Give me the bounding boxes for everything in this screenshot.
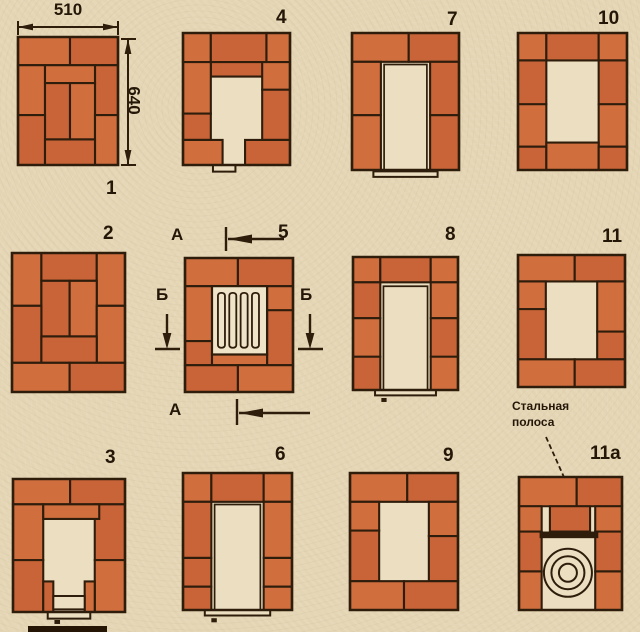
brick bbox=[185, 365, 238, 392]
brick bbox=[546, 33, 598, 60]
brick bbox=[185, 341, 212, 365]
brick bbox=[43, 581, 53, 612]
brick bbox=[599, 60, 627, 104]
course-drawing bbox=[13, 479, 125, 612]
steel-strip-label: Стальная полоса bbox=[512, 399, 578, 430]
door-plate bbox=[53, 596, 84, 609]
course-10 bbox=[518, 33, 627, 170]
brick bbox=[409, 33, 459, 62]
brick bbox=[352, 62, 381, 115]
course-6 bbox=[183, 473, 292, 610]
course-number-1: 1 bbox=[106, 179, 117, 198]
brick bbox=[429, 502, 458, 536]
dimension-height-label: 640 bbox=[126, 79, 143, 123]
brick bbox=[18, 115, 45, 165]
brick bbox=[45, 83, 70, 139]
brick bbox=[211, 33, 267, 62]
course-8 bbox=[353, 257, 458, 390]
brick bbox=[267, 286, 293, 310]
brick bbox=[85, 581, 95, 612]
brick bbox=[212, 354, 267, 365]
brick bbox=[185, 286, 212, 341]
brick bbox=[45, 139, 95, 165]
course-4 bbox=[183, 33, 290, 165]
section-marker-b-left: Б bbox=[156, 286, 168, 303]
brick bbox=[575, 255, 625, 281]
brick bbox=[518, 60, 546, 104]
brick bbox=[264, 587, 292, 610]
course-5 bbox=[185, 258, 293, 392]
course-3 bbox=[13, 479, 125, 612]
door-plate bbox=[373, 171, 437, 176]
brick bbox=[211, 62, 267, 77]
course-number-6: 6 bbox=[275, 445, 286, 464]
steel-strip bbox=[54, 620, 60, 624]
brick bbox=[431, 318, 458, 357]
brick bbox=[518, 104, 546, 146]
course-number-9: 9 bbox=[443, 446, 454, 465]
brick bbox=[429, 536, 458, 581]
brick bbox=[595, 506, 622, 531]
brick bbox=[70, 363, 125, 392]
course-number-7: 7 bbox=[447, 10, 458, 29]
brick bbox=[13, 560, 43, 612]
brick bbox=[350, 502, 379, 531]
brick bbox=[43, 504, 99, 519]
brick bbox=[380, 257, 430, 282]
brick bbox=[353, 318, 380, 357]
brick bbox=[183, 62, 211, 113]
brick bbox=[350, 581, 404, 610]
brick bbox=[350, 473, 407, 502]
steel-strip bbox=[381, 398, 386, 402]
brick bbox=[70, 37, 118, 65]
brick bbox=[431, 357, 458, 390]
brick bbox=[431, 282, 458, 318]
section-a-top-arrowhead bbox=[228, 235, 252, 244]
section-b-left-arrowhead bbox=[163, 333, 172, 349]
brick bbox=[97, 253, 125, 306]
brick bbox=[245, 140, 290, 165]
brick bbox=[70, 83, 95, 139]
brick bbox=[577, 477, 622, 506]
brick bbox=[95, 65, 118, 115]
brick bbox=[18, 65, 45, 115]
brick bbox=[518, 359, 575, 387]
brick bbox=[518, 33, 546, 60]
brick bbox=[12, 306, 41, 363]
brick bbox=[519, 571, 542, 610]
course-drawing bbox=[18, 37, 118, 165]
course-11 bbox=[518, 255, 625, 387]
brick bbox=[353, 282, 380, 318]
brick bbox=[430, 115, 459, 170]
brick bbox=[264, 473, 292, 502]
brick bbox=[267, 310, 293, 365]
brick bbox=[183, 33, 211, 62]
brick bbox=[518, 255, 575, 281]
course-drawing bbox=[183, 473, 292, 610]
brick bbox=[12, 253, 41, 306]
course-drawing bbox=[518, 33, 627, 170]
section-b-right-arrowhead bbox=[306, 333, 315, 349]
brick bbox=[183, 558, 211, 587]
brick bbox=[352, 115, 381, 170]
course-number-11a: 11а bbox=[590, 444, 621, 463]
section-a-bottom-arrowhead bbox=[239, 409, 263, 418]
course-number-11: 11 bbox=[602, 227, 622, 246]
steel-strip bbox=[540, 532, 599, 539]
brick bbox=[430, 62, 459, 115]
stove-brick-course-diagram: 510 640 А А Б Б Стальная полоса 12345678… bbox=[0, 0, 640, 632]
course-2 bbox=[12, 253, 125, 392]
course-drawing bbox=[12, 253, 125, 392]
course-number-2: 2 bbox=[103, 224, 114, 243]
brick bbox=[262, 62, 290, 90]
brick bbox=[183, 140, 223, 165]
brick bbox=[70, 281, 97, 337]
brick bbox=[519, 532, 542, 572]
brick bbox=[13, 479, 70, 504]
brick bbox=[183, 587, 211, 610]
brick bbox=[431, 257, 458, 282]
brick bbox=[518, 147, 546, 170]
course-7 bbox=[352, 33, 459, 170]
brick bbox=[97, 306, 125, 363]
brick bbox=[518, 309, 546, 359]
brick bbox=[599, 147, 627, 170]
course-number-10: 10 bbox=[598, 9, 619, 28]
course-drawing bbox=[353, 257, 458, 390]
brick bbox=[599, 33, 627, 60]
brick bbox=[183, 114, 211, 140]
section-marker-a-bottom: А bbox=[169, 401, 181, 418]
brick bbox=[211, 473, 263, 502]
course-drawing bbox=[185, 258, 293, 392]
brick bbox=[41, 253, 96, 281]
course-9 bbox=[350, 473, 458, 610]
brick bbox=[353, 257, 380, 282]
brick bbox=[266, 33, 290, 62]
brick bbox=[238, 258, 293, 286]
course-drawing bbox=[519, 477, 622, 610]
brick bbox=[183, 473, 211, 502]
brick bbox=[550, 506, 590, 531]
brick bbox=[599, 104, 627, 146]
course-drawing bbox=[350, 473, 458, 610]
brick bbox=[597, 332, 625, 360]
brick bbox=[518, 281, 546, 309]
brick bbox=[264, 558, 292, 587]
brick bbox=[519, 477, 577, 506]
brick bbox=[18, 37, 70, 65]
course-1 bbox=[18, 37, 118, 165]
brick bbox=[95, 560, 125, 612]
course-number-8: 8 bbox=[445, 225, 456, 244]
brick bbox=[404, 581, 458, 610]
brick bbox=[595, 532, 622, 572]
course-drawing bbox=[518, 255, 625, 387]
course-number-3: 3 bbox=[105, 448, 116, 467]
section-marker-b-right: Б bbox=[300, 286, 312, 303]
brick bbox=[95, 115, 118, 165]
brick bbox=[519, 506, 542, 531]
brick bbox=[238, 365, 293, 392]
brick bbox=[12, 363, 70, 392]
brick bbox=[350, 531, 379, 582]
brick bbox=[45, 65, 95, 83]
brick bbox=[13, 504, 43, 560]
brick bbox=[183, 502, 211, 558]
course-drawing bbox=[183, 33, 290, 165]
course-number-4: 4 bbox=[276, 8, 287, 27]
brick bbox=[352, 33, 409, 62]
brick bbox=[185, 258, 238, 286]
dimension-width-label: 510 bbox=[46, 1, 90, 18]
section-marker-a-top: А bbox=[171, 226, 183, 243]
brick bbox=[262, 90, 290, 140]
brick bbox=[597, 281, 625, 331]
course-drawing bbox=[352, 33, 459, 170]
brick bbox=[595, 571, 622, 610]
brick bbox=[70, 479, 125, 504]
page-edge-artifact bbox=[28, 626, 107, 632]
steel-strip bbox=[211, 618, 216, 622]
course-number-5: 5 bbox=[278, 223, 289, 242]
course-11a bbox=[519, 477, 622, 610]
brick bbox=[546, 143, 598, 170]
brick bbox=[264, 502, 292, 558]
brick bbox=[575, 359, 625, 387]
brick bbox=[407, 473, 458, 502]
brick bbox=[353, 357, 380, 390]
brick bbox=[41, 336, 96, 362]
brick bbox=[41, 281, 69, 337]
